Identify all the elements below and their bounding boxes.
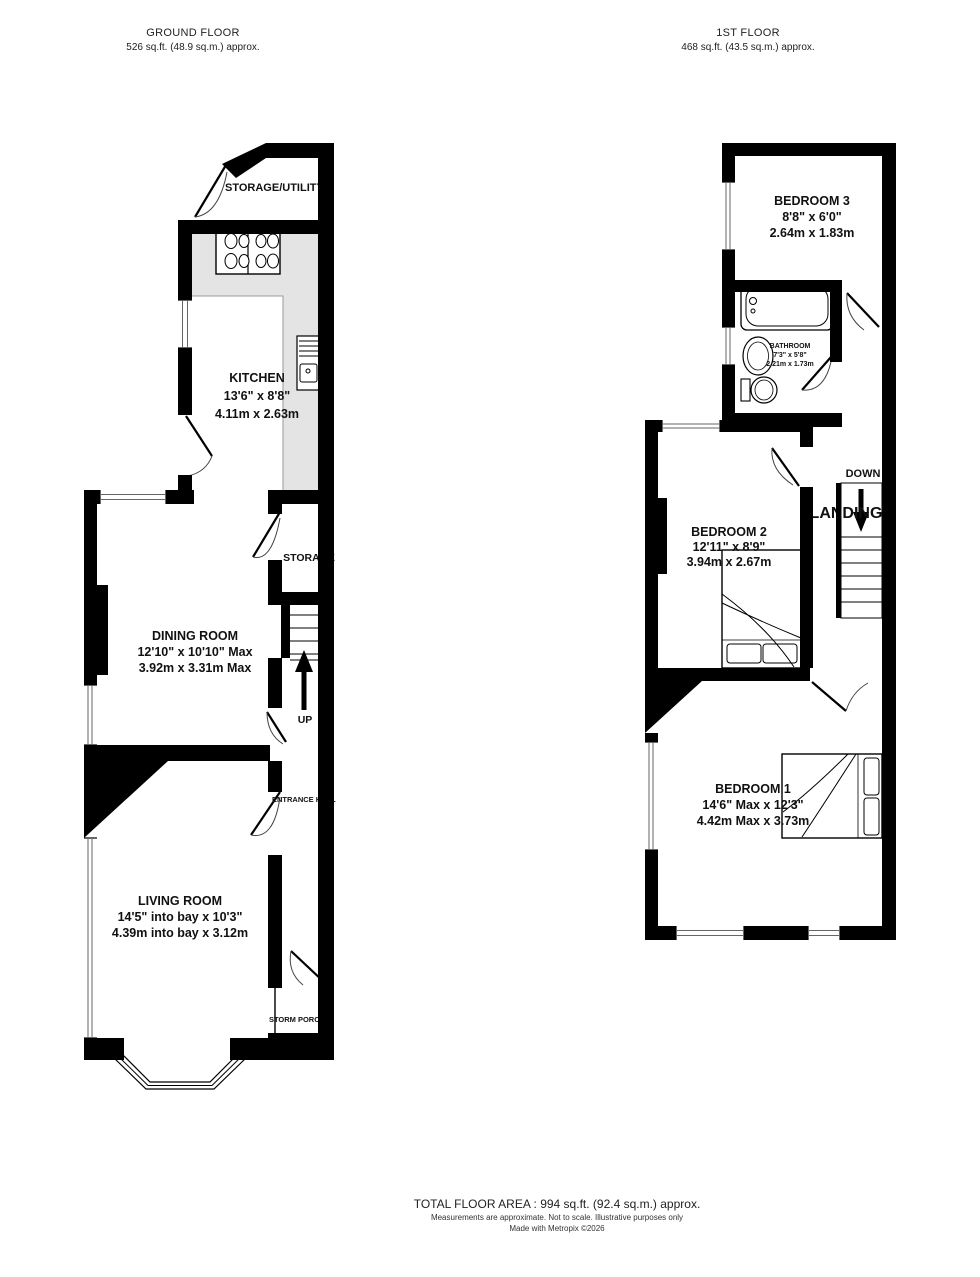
dining-room-size-imperial: 12'10" x 10'10" Max	[137, 645, 252, 659]
bathroom-label: BATHROOM	[770, 343, 811, 350]
kitchen-size-metric: 4.11m x 2.63m	[215, 407, 299, 421]
kitchen-label: KITCHEN	[229, 371, 285, 385]
living-room-size-metric: 4.39m into bay x 3.12m	[112, 926, 248, 940]
bedroom1-size-imperial: 14'6" Max x 12'3"	[702, 798, 803, 812]
bedroom3-label: BEDROOM 3	[774, 194, 850, 208]
bedroom2-size-imperial: 12'11" x 8'9"	[693, 540, 766, 554]
bedroom2-size-metric: 3.94m x 2.67m	[687, 555, 772, 569]
storm-porch-label: STORM PORCH	[269, 1015, 325, 1024]
basin-icon	[743, 337, 773, 375]
credit: Made with Metropix ©2026	[307, 1223, 807, 1234]
stairs-up-icon	[290, 602, 318, 710]
stairs-down-label: DOWN	[846, 468, 881, 480]
kitchen-size-imperial: 13'6" x 8'8"	[224, 389, 291, 403]
stairs-down-icon	[841, 483, 882, 618]
total-floor-area: TOTAL FLOOR AREA : 994 sq.ft. (92.4 sq.m…	[307, 1196, 807, 1212]
bay-window-icon	[114, 1052, 246, 1089]
first-floor-plan: BEDROOM 3 8'8" x 6'0" 2.64m x 1.83m BATH…	[645, 143, 896, 940]
bedroom3-size-imperial: 8'8" x 6'0"	[782, 210, 842, 224]
bedroom2-label: BEDROOM 2	[691, 525, 767, 539]
dining-room-label: DINING ROOM	[152, 629, 238, 643]
bedroom1-label: BEDROOM 1	[715, 782, 791, 796]
landing-label: LANDING	[810, 505, 883, 522]
bedroom3-size-metric: 2.64m x 1.83m	[770, 226, 855, 240]
footer: TOTAL FLOOR AREA : 994 sq.ft. (92.4 sq.m…	[307, 1196, 807, 1234]
stove-icon	[216, 228, 280, 274]
bathroom-size-metric: 2.21m x 1.73m	[766, 361, 813, 368]
floorplan-drawing: STORAGE/UTILITY KITCHEN 13'6" x 8'8" 4.1…	[0, 0, 980, 1277]
bathroom-size-imperial: 7'3" x 5'8"	[773, 352, 806, 359]
living-room-label: LIVING ROOM	[138, 894, 222, 908]
sink-icon	[297, 336, 320, 390]
floorplan-page: GROUND FLOOR 526 sq.ft. (48.9 sq.m.) app…	[0, 0, 980, 1277]
living-room-size-imperial: 14'5" into bay x 10'3"	[118, 910, 243, 924]
ground-floor-plan: STORAGE/UTILITY KITCHEN 13'6" x 8'8" 4.1…	[84, 143, 336, 1089]
bedroom1-size-metric: 4.42m Max x 3.73m	[697, 814, 810, 828]
dining-room-size-metric: 3.92m x 3.31m Max	[139, 661, 252, 675]
stairs-up-label: UP	[298, 714, 313, 726]
toilet-icon	[741, 377, 777, 403]
storage-utility-label: STORAGE/UTILITY	[225, 182, 324, 194]
disclaimer: Measurements are approximate. Not to sca…	[307, 1212, 807, 1223]
